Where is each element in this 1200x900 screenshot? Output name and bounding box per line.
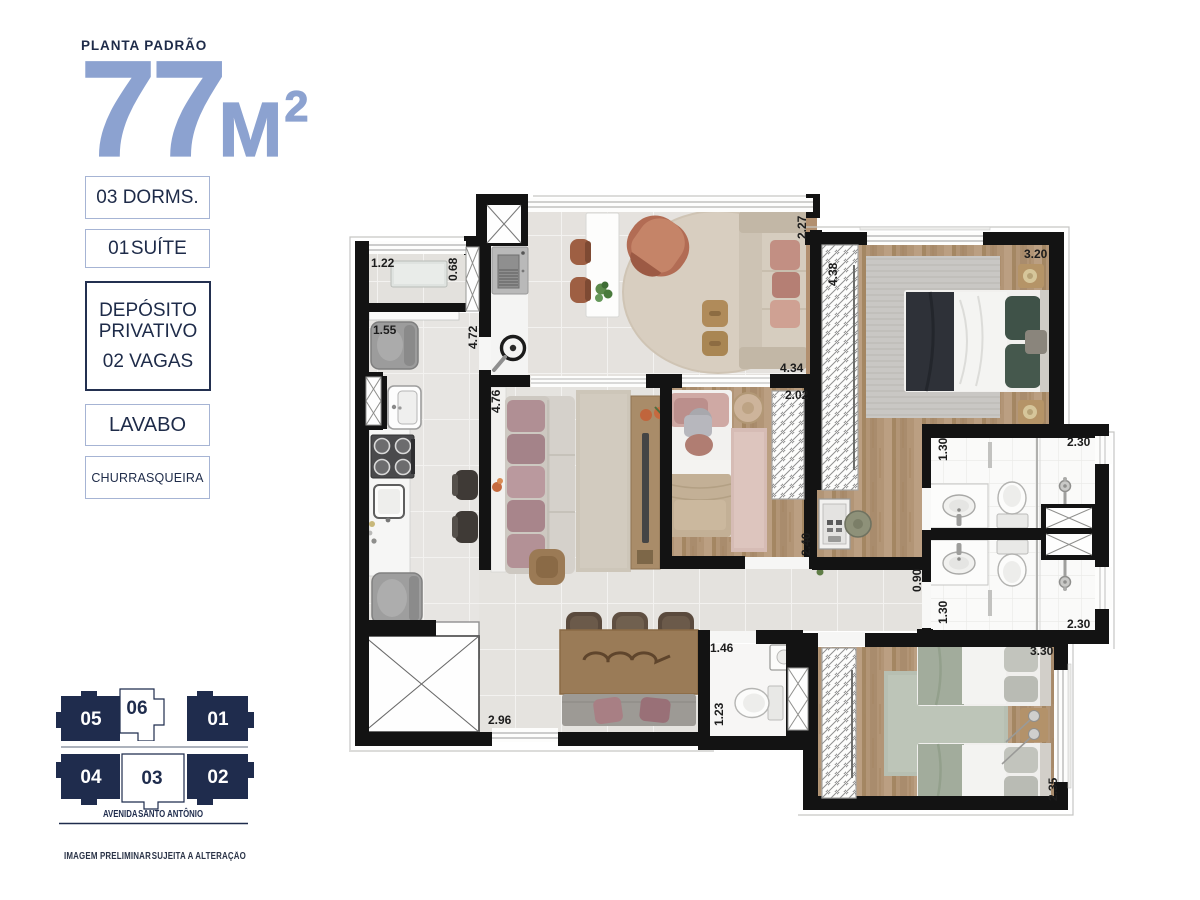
svg-text:1.30: 1.30 <box>936 437 950 461</box>
svg-text:4.76: 4.76 <box>489 389 503 413</box>
svg-text:1.22: 1.22 <box>371 256 395 270</box>
svg-text:3.30: 3.30 <box>1030 644 1054 658</box>
svg-text:1.30: 1.30 <box>936 600 950 624</box>
svg-text:2.35: 2.35 <box>1046 777 1060 801</box>
svg-text:2.30: 2.30 <box>1067 617 1091 631</box>
svg-text:4.38: 4.38 <box>826 262 840 286</box>
svg-text:2.40: 2.40 <box>799 532 813 556</box>
svg-text:0.68: 0.68 <box>446 257 460 281</box>
svg-text:1.55: 1.55 <box>373 323 397 337</box>
svg-text:4.34: 4.34 <box>780 361 804 375</box>
svg-text:2.02: 2.02 <box>785 388 809 402</box>
svg-text:2.30: 2.30 <box>1067 435 1091 449</box>
svg-text:2.96: 2.96 <box>488 713 512 727</box>
svg-text:3.20: 3.20 <box>1024 247 1048 261</box>
svg-text:0.90: 0.90 <box>910 568 924 592</box>
svg-text:1.23: 1.23 <box>712 702 726 726</box>
svg-text:4.72: 4.72 <box>466 325 480 349</box>
svg-text:2.27: 2.27 <box>795 215 809 239</box>
svg-text:1.46: 1.46 <box>710 641 734 655</box>
